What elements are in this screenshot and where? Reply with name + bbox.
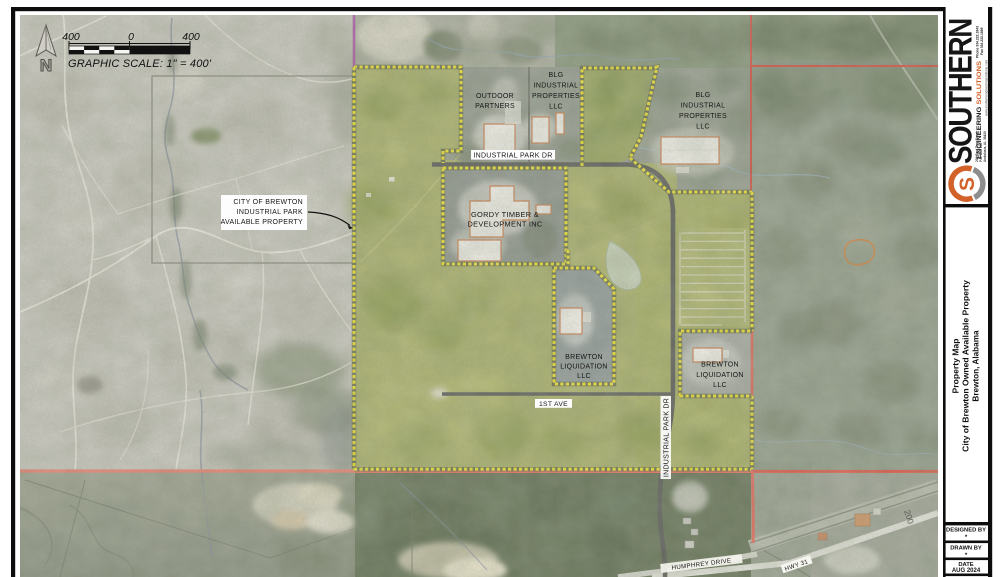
svg-text:Brewton, Alabama: Brewton, Alabama <box>972 330 981 402</box>
svg-text:BREWTON: BREWTON <box>701 362 739 369</box>
svg-text:City of Brewton Owned Availabl: City of Brewton Owned Available Property <box>961 280 971 452</box>
svg-text:N: N <box>40 56 52 75</box>
svg-text:AUG 2024: AUG 2024 <box>952 568 981 574</box>
svg-text:OUTDOOR: OUTDOOR <box>476 93 514 100</box>
svg-text:INDUSTRIAL PARK DR: INDUSTRIAL PARK DR <box>473 153 552 160</box>
svg-text:GRAPHIC SCALE: 1" = 400': GRAPHIC SCALE: 1" = 400' <box>68 58 212 70</box>
svg-text:AVAILABLE PROPERTY: AVAILABLE PROPERTY <box>221 219 303 226</box>
svg-text:LIQUIDATION: LIQUIDATION <box>696 372 744 379</box>
svg-text:LLC: LLC <box>549 104 563 111</box>
svg-text:INDUSTRIAL: INDUSTRIAL <box>534 83 579 90</box>
svg-text:0: 0 <box>128 31 134 43</box>
svg-text:PROPERTIES: PROPERTIES <box>679 113 727 120</box>
svg-text:Fax 334.222.1869: Fax 334.222.1869 <box>980 27 984 55</box>
svg-text:INDUSTRIAL PARK: INDUSTRIAL PARK <box>237 209 303 216</box>
svg-text:SOUTHERN: SOUTHERN <box>943 19 979 164</box>
svg-text:LLC: LLC <box>713 382 727 389</box>
svg-text:400: 400 <box>182 31 200 43</box>
svg-text:400: 400 <box>62 31 80 43</box>
svg-text:INDUSTRIAL PARK DR: INDUSTRIAL PARK DR <box>663 398 670 477</box>
svg-text:INDUSTRIAL: INDUSTRIAL <box>681 103 726 110</box>
svg-text:DRAWN BY: DRAWN BY <box>950 546 982 552</box>
svg-text:Andalusia, AL 36420: Andalusia, AL 36420 <box>983 131 987 162</box>
svg-text:PARTNERS: PARTNERS <box>475 103 515 110</box>
svg-text:BREWTON: BREWTON <box>565 354 603 361</box>
svg-text:CITY OF BREWTON: CITY OF BREWTON <box>233 199 303 206</box>
svg-text:1ST AVE: 1ST AVE <box>539 401 568 408</box>
svg-text:LIQUIDATION: LIQUIDATION <box>560 364 608 371</box>
svg-text:PROPERTIES: PROPERTIES <box>532 93 580 100</box>
svg-text:DESIGNED BY: DESIGNED BY <box>946 528 986 534</box>
svg-text:www.southernengineeringsolutio: www.southernengineeringsolutions.com <box>985 59 989 116</box>
svg-text:BLG: BLG <box>549 72 564 79</box>
svg-text:BLG: BLG <box>696 92 711 99</box>
svg-text:Phone 334.222.1843: Phone 334.222.1843 <box>976 26 980 58</box>
svg-text:GORDY TIMBER &: GORDY TIMBER & <box>471 210 539 219</box>
svg-text:LLC: LLC <box>577 373 591 380</box>
svg-text:LLC: LLC <box>696 124 710 131</box>
svg-text:DEVELOPMENT INC: DEVELOPMENT INC <box>468 220 543 229</box>
svg-text:S: S <box>956 177 979 191</box>
svg-text:Property Map: Property Map <box>951 339 961 394</box>
